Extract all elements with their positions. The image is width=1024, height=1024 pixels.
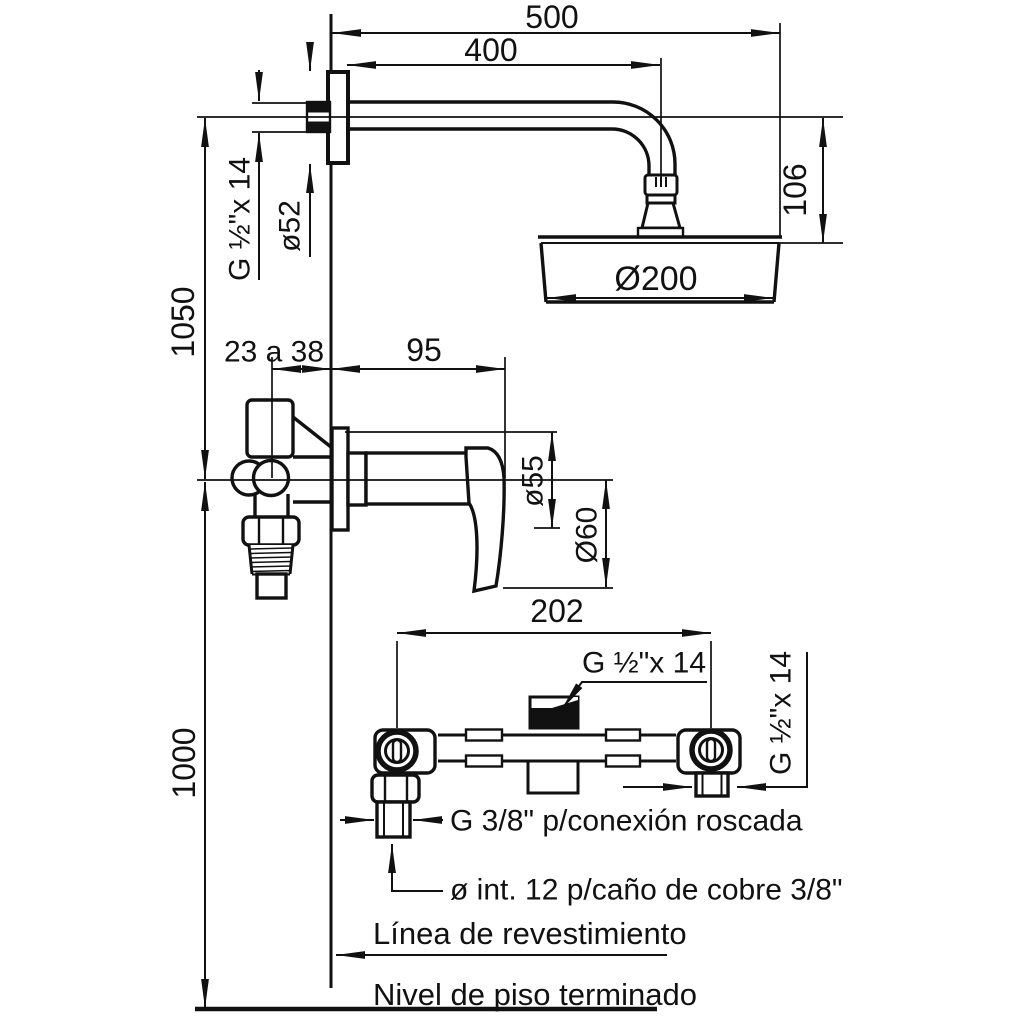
escutcheon	[332, 428, 348, 530]
center-inlet-block	[530, 697, 578, 728]
technical-drawing: 500 400 106 Ø200 ø52 G ½"x 14 1050 23 a …	[0, 0, 1024, 1024]
shower-arm-assembly	[307, 72, 782, 302]
right-union-screw	[692, 731, 730, 769]
dim-thread-right: G ½"x 14	[765, 651, 798, 775]
valve-top-body	[247, 400, 293, 457]
dim-diameter-200: Ø200	[614, 260, 697, 298]
dim-106: 106	[777, 163, 813, 216]
dim-400: 400	[464, 32, 517, 68]
label-bottom-connection: G 3/8" p/conexión roscada	[450, 805, 803, 838]
dim-diameter-60: Ø60	[571, 507, 604, 564]
dim-thread-center: G ½"x 14	[582, 647, 706, 680]
label-floor-line: Nivel de piso terminado	[373, 977, 697, 1012]
cartridge	[366, 453, 477, 504]
left-union-screw	[378, 732, 416, 770]
dim-1000: 1000	[166, 727, 202, 798]
valve-ball	[254, 461, 289, 496]
dim-diameter-55: ø55	[517, 455, 550, 507]
left-bottom-stub	[377, 802, 410, 837]
shower-arm	[348, 102, 675, 176]
shower-installation-diagram: 500 400 106 Ø200 ø52 G ½"x 14 1050 23 a …	[0, 0, 1024, 1024]
head-connector-bell	[638, 195, 683, 237]
diverter-valve	[232, 400, 331, 598]
dim-95: 95	[406, 332, 442, 368]
dim-thread-arm: G ½"x 14	[224, 157, 257, 281]
label-tile-line: Línea de revestimiento	[373, 916, 687, 951]
left-hex-adapter	[372, 775, 419, 802]
valve-bottom-stub	[257, 574, 286, 598]
body-step	[348, 453, 366, 505]
dim-23a38: 23 a 38	[224, 336, 324, 369]
dim-diameter-52: ø52	[274, 200, 307, 252]
dim-500: 500	[525, 0, 578, 35]
note-texts: G 3/8" p/conexión roscada ø int. 12 p/ca…	[373, 805, 843, 1012]
center-outlet	[528, 761, 578, 793]
valve-hex-nut	[243, 517, 299, 545]
dim-202: 202	[530, 593, 583, 629]
dim-1050: 1050	[165, 286, 201, 357]
label-pipe-note: ø int. 12 p/caño de cobre 3/8"	[450, 874, 843, 907]
mixer-handle	[466, 448, 504, 591]
right-bottom-stub	[696, 773, 728, 796]
valve-thread	[249, 545, 293, 575]
mixer-body	[332, 428, 504, 591]
